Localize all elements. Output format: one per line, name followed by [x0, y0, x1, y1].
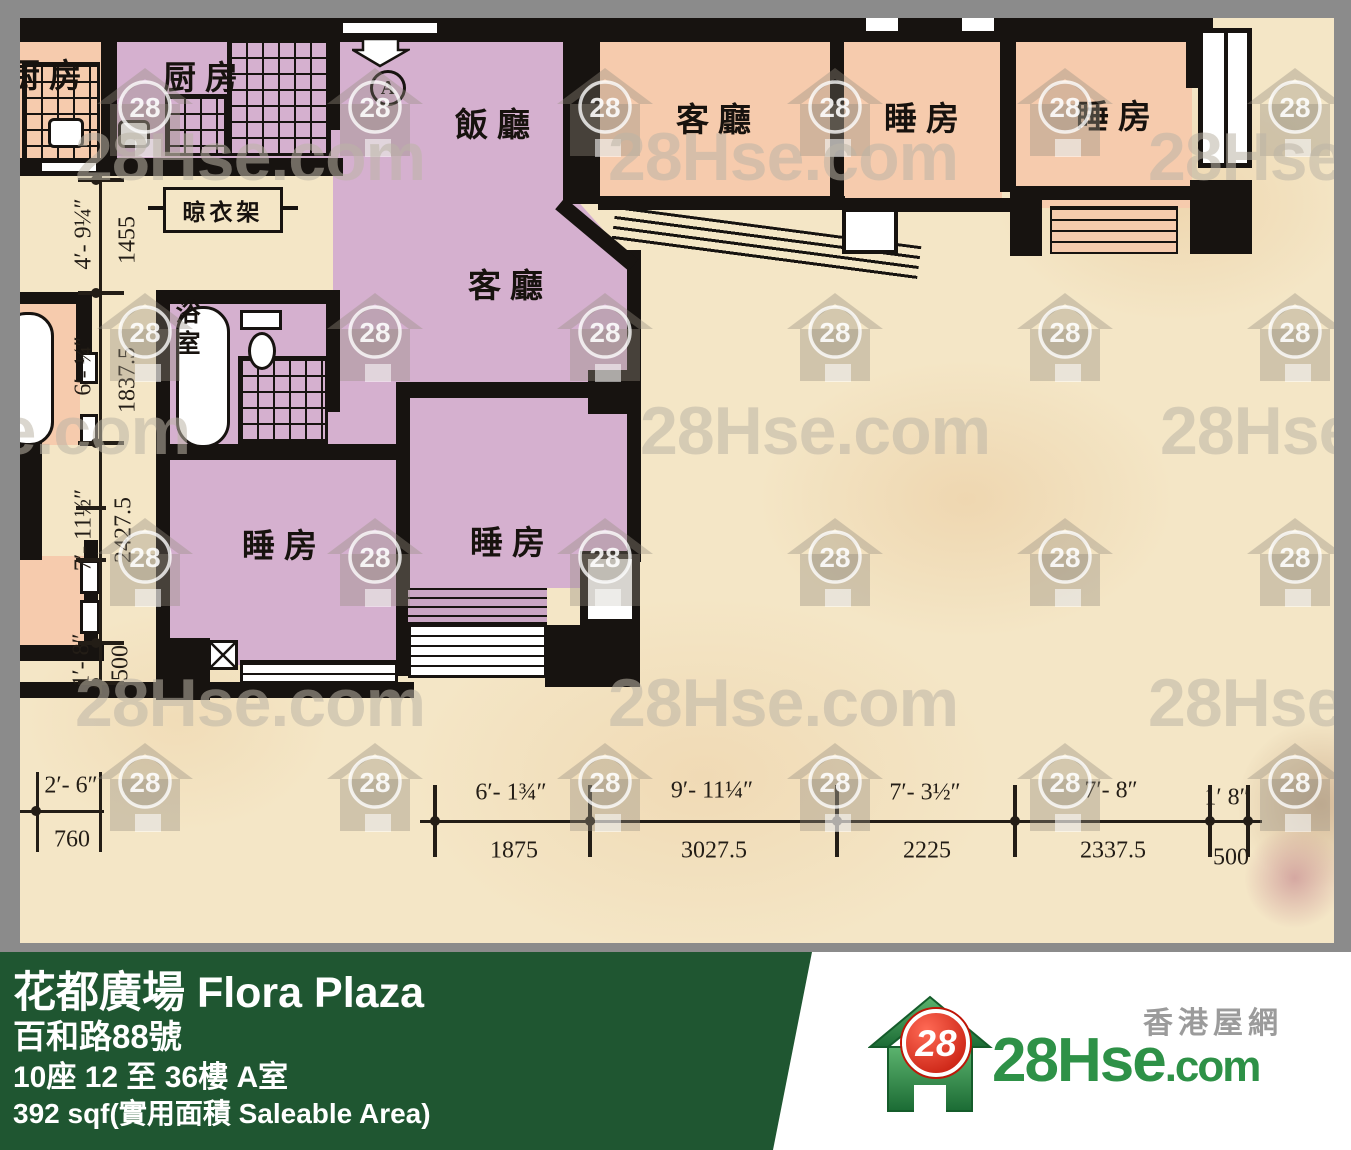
dim-h3-ft: 7′- 3½″ — [889, 780, 960, 807]
wall-segment — [101, 14, 117, 176]
toilet-tank — [240, 310, 282, 330]
wall-segment — [156, 444, 170, 652]
room-label-living: 客廳 — [468, 259, 552, 307]
dim-v2-mm: 1837.5 — [115, 347, 142, 413]
dim-tick — [78, 178, 124, 182]
dim-line-vertical — [99, 174, 102, 694]
kitchen-sink — [118, 120, 150, 148]
wall-segment — [545, 625, 640, 687]
room-label-kitchen: 厨房 — [163, 51, 247, 99]
flat-marker-label: A — [381, 77, 395, 100]
logo-house-icon: 28 — [868, 995, 993, 1113]
room-label-dining: 飯廳 — [455, 98, 539, 146]
dim-h4-mm: 2337.5 — [1080, 838, 1146, 865]
room-label-bedroom-1: 睡房 — [242, 519, 326, 567]
wall-segment — [1010, 186, 1042, 256]
logo-suffix: .com — [1165, 1045, 1260, 1089]
dim-h5-ft: 1′ 8″ — [1204, 785, 1249, 812]
room-label-drying-rack: 晾衣架 — [183, 193, 264, 227]
logo-name: 28Hse — [992, 1030, 1165, 1092]
wall-segment — [103, 158, 343, 176]
dim-left-ft: 2′- 6″ — [44, 773, 97, 800]
frame-top — [0, 0, 1351, 18]
estate-address: 百和路88號 — [13, 1010, 182, 1058]
dim-tick — [588, 785, 592, 857]
frame-bottom — [0, 943, 1351, 952]
window-gap — [962, 18, 994, 31]
dim-h1-mm: 1875 — [490, 838, 538, 865]
saleable-area: 392 sqf(實用面積 Saleable Area) — [13, 1092, 431, 1132]
dim-h1-ft: 6′- 1¾″ — [475, 780, 546, 807]
dim-h3-mm: 2225 — [903, 838, 951, 865]
wall-segment — [326, 18, 340, 130]
bay-window-box — [580, 551, 640, 627]
tick — [283, 206, 298, 210]
unit-info: 10座 12 至 36樓 A室 — [13, 1052, 288, 1096]
dim-dot — [31, 806, 41, 816]
window-channel — [1198, 28, 1252, 168]
dim-h2-ft: 9′- 11¼″ — [671, 778, 753, 805]
dim-v1-mm: 1455 — [115, 216, 142, 264]
dim-h4-ft: 7′- 8″ — [1084, 778, 1137, 805]
dim-tick — [78, 291, 124, 295]
adj-sink — [48, 118, 84, 148]
window-sill — [408, 622, 547, 678]
dim-tick — [835, 785, 839, 857]
window-sill — [240, 660, 398, 684]
room-label-bathroom: 浴室 — [167, 299, 203, 361]
window-band — [40, 161, 98, 173]
wall-segment — [830, 18, 844, 200]
entrance-arrow-icon — [352, 38, 410, 68]
flat-marker-circle: A — [370, 70, 406, 106]
wall-segment — [326, 290, 340, 412]
kitchen-tiles — [165, 94, 227, 156]
window-notch — [80, 600, 100, 634]
wall-segment — [1000, 18, 1016, 192]
dim-v1-ft: 4′- 9¼″ — [71, 198, 98, 269]
dim-v4-mm: 500 — [108, 645, 135, 681]
dim-tick — [433, 785, 437, 857]
frame-right — [1334, 0, 1351, 952]
dim-h2-mm: 3027.5 — [681, 838, 747, 865]
wall-segment — [400, 382, 590, 398]
dim-v3-mm: 2427.5 — [111, 497, 138, 563]
svg-text:28: 28 — [914, 1023, 957, 1064]
dim-v4-ft: 1′- 8″ — [69, 633, 96, 686]
frame-left — [0, 0, 20, 952]
dim-v3-ft: 7′- 11½″ — [71, 489, 98, 571]
room-label-bedroom-2: 睡房 — [470, 516, 554, 564]
dim-h5-mm: 500 — [1213, 845, 1249, 872]
room-label-adj-bedroom-2: 睡房 — [1076, 90, 1160, 138]
floorplan-screenshot: A 厨房 厨房 飯廳 客廳 浴室 晾衣架 睡房 睡房 客廳 睡房 睡房 4′- … — [0, 0, 1351, 1150]
property-info-banner: 28 28Hse .com 香港屋網 花都廣場 Flora Plaza 百和路8… — [0, 952, 1351, 1150]
dim-tick — [99, 772, 102, 852]
tick — [148, 206, 163, 210]
wall-segment — [588, 370, 638, 414]
dim-tick — [78, 441, 124, 445]
logo-tagline: 香港屋網 — [1143, 998, 1283, 1042]
wall-segment — [18, 438, 42, 560]
window-gap — [866, 18, 898, 31]
wall-segment — [563, 18, 600, 204]
toilet-bowl — [248, 332, 276, 370]
wall-segment — [1190, 180, 1252, 254]
dim-left-mm: 760 — [54, 827, 90, 854]
entrance-window — [340, 20, 440, 36]
window-sill — [1050, 206, 1178, 254]
room-label-adj-living: 客廳 — [676, 93, 760, 141]
window-sill — [408, 588, 547, 622]
window-x-icon — [208, 640, 238, 670]
logo-panel: 28 28Hse .com 香港屋網 — [755, 952, 1351, 1150]
dim-v2-ft: 6′- ¼″ — [71, 336, 98, 395]
dim-tick — [1013, 785, 1017, 857]
wall-segment — [598, 196, 845, 210]
bathroom-tiles — [238, 356, 328, 444]
room-label-adj-bedroom-1: 睡房 — [884, 92, 968, 140]
door-opening — [842, 208, 898, 254]
